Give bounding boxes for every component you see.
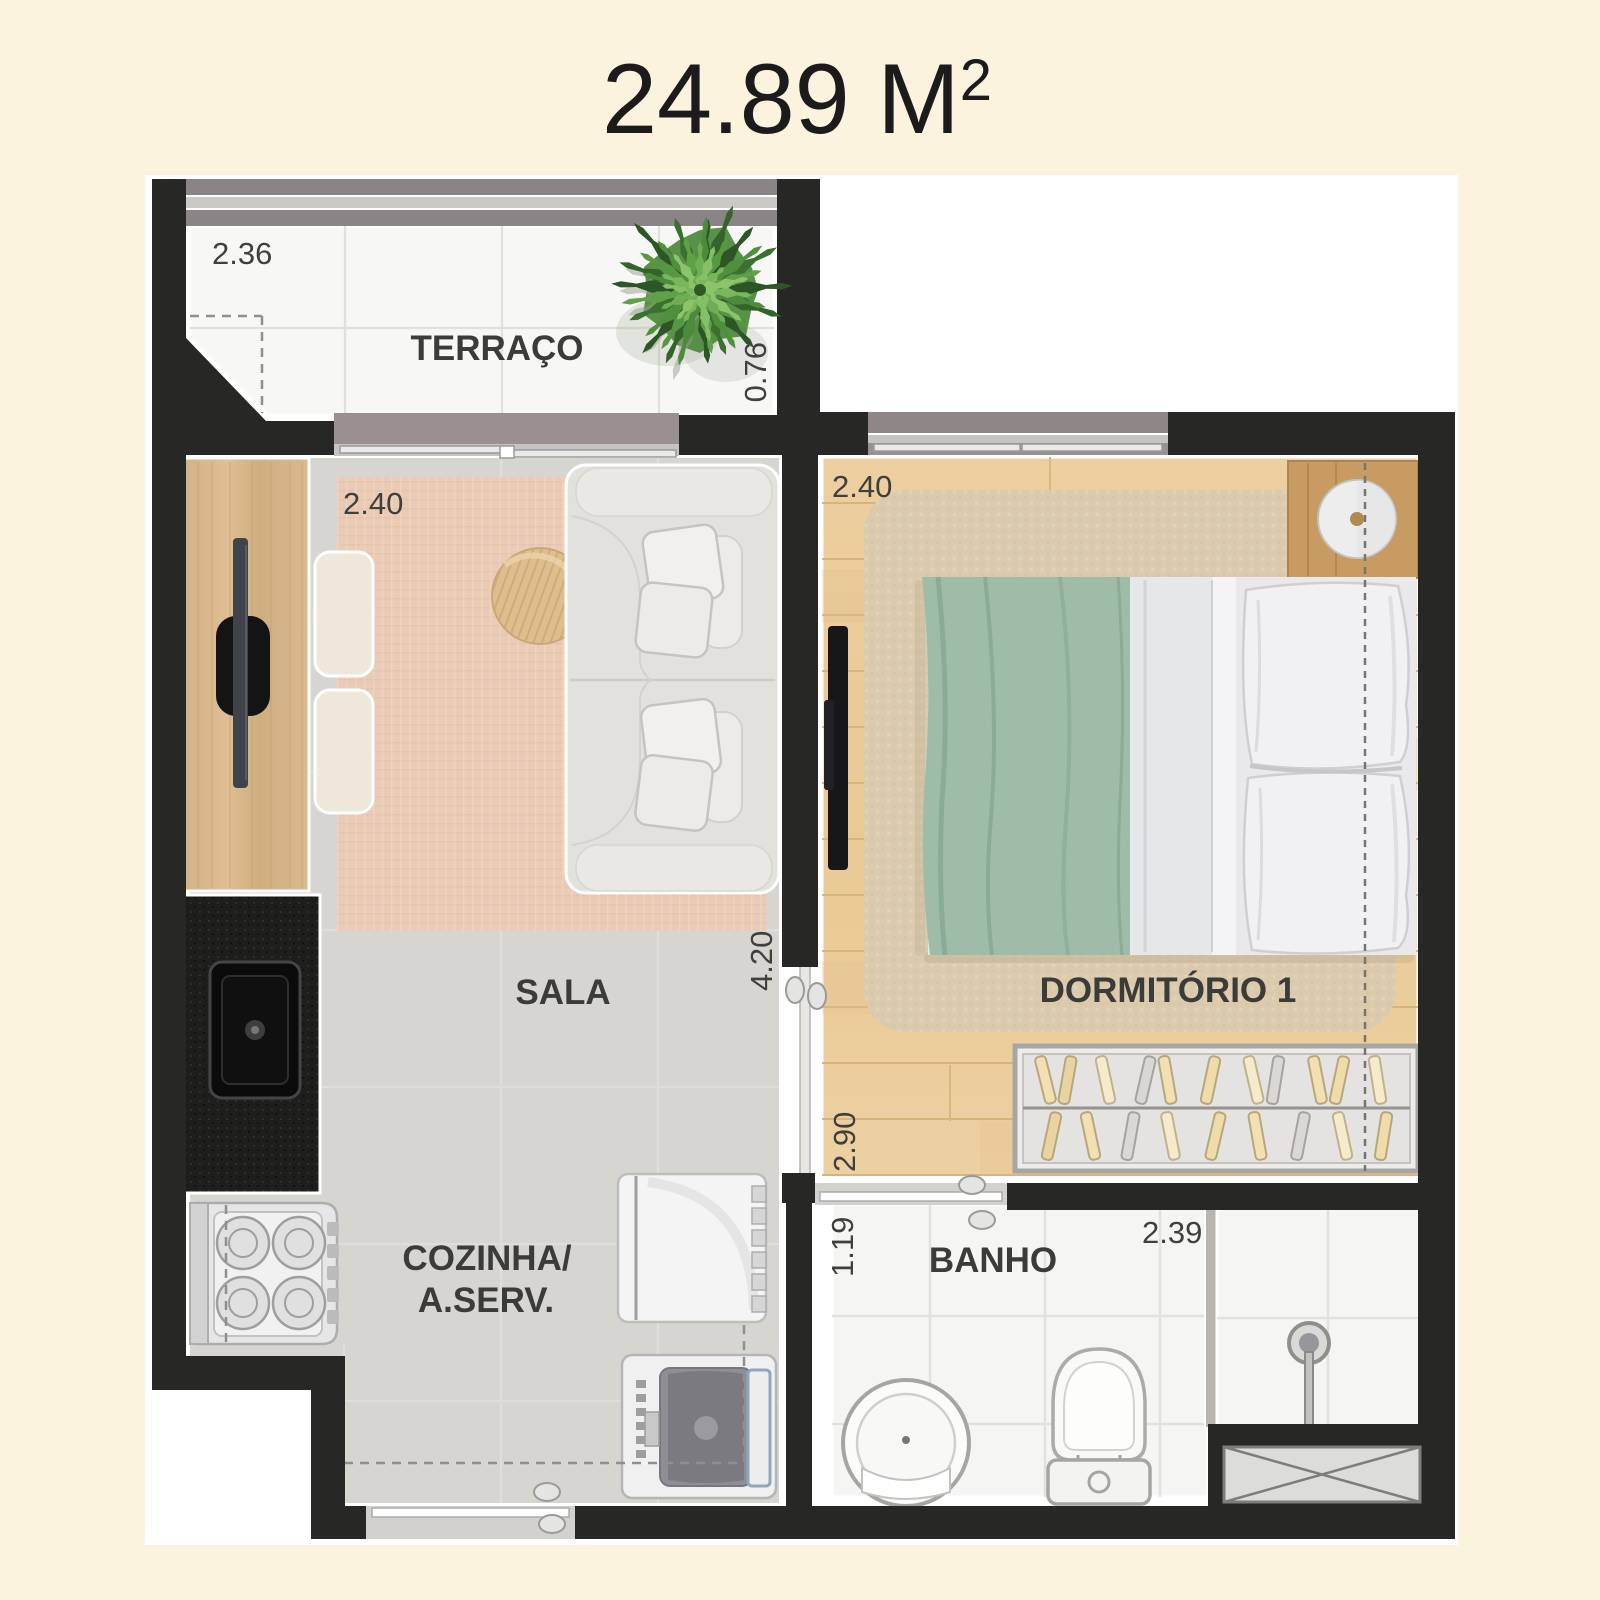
svg-text:A.SERV.: A.SERV. (418, 1281, 554, 1320)
svg-text:0.76: 0.76 (738, 342, 773, 402)
svg-text:SALA: SALA (515, 973, 610, 1012)
svg-text:2.40: 2.40 (343, 486, 403, 521)
svg-text:BANHO: BANHO (929, 1241, 1057, 1280)
svg-text:2.39: 2.39 (1142, 1215, 1202, 1250)
svg-text:COZINHA/: COZINHA/ (402, 1239, 571, 1278)
svg-text:1.19: 1.19 (825, 1217, 860, 1277)
svg-text:2.40: 2.40 (832, 469, 892, 504)
svg-text:TERRAÇO: TERRAÇO (410, 329, 583, 368)
svg-text:DORMITÓRIO 1: DORMITÓRIO 1 (1040, 970, 1297, 1010)
svg-text:4.20: 4.20 (744, 931, 779, 991)
svg-text:2.36: 2.36 (212, 236, 272, 271)
svg-text:2.90: 2.90 (827, 1112, 862, 1172)
svg-text:24.89 M2: 24.89 M2 (602, 43, 992, 154)
